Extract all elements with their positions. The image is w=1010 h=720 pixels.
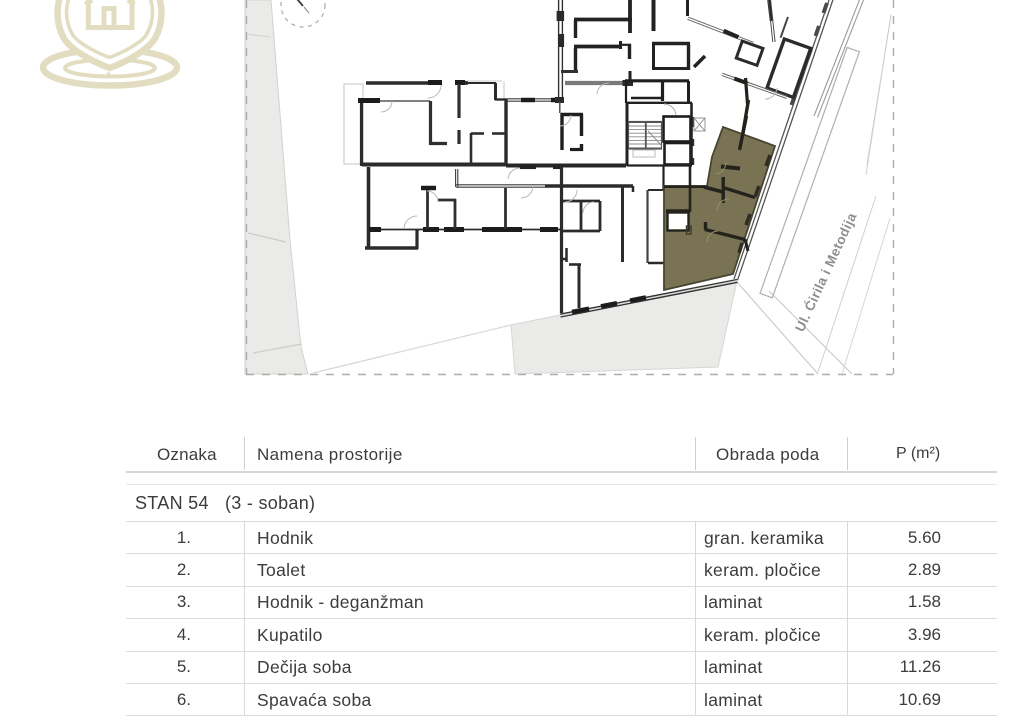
svg-text:Ul. Ćirila i Metodija: Ul. Ćirila i Metodija (792, 210, 859, 334)
